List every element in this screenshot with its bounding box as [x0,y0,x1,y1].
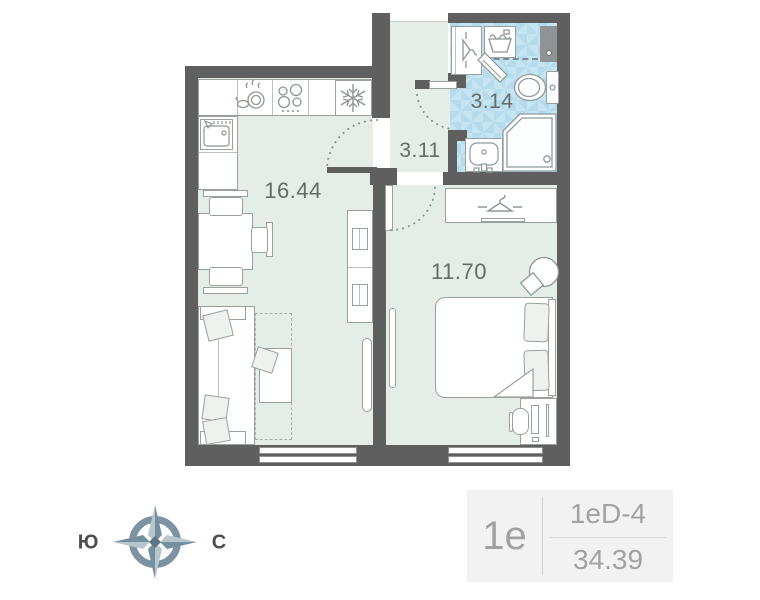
living-window [259,447,357,454]
shelf-cabinet-line [359,229,360,249]
toilet-tank [546,71,559,104]
radiator [389,308,396,388]
room-label-kitchen-living: 16.44 [264,178,322,204]
desk-chair [512,408,529,435]
legend-layout-code: 1е [467,490,542,582]
entrance-opening [390,13,448,22]
sofa-pillow [202,417,231,445]
wall-kitchen-top [185,66,372,78]
counter-divider [272,80,273,115]
shelf-cabinet-icon [352,284,368,306]
desk-chair-back [509,412,513,432]
chair-seat [251,227,268,253]
bedroom-window [448,447,543,454]
chair-seat [209,267,243,286]
chair-backrest [203,287,248,294]
room-label-bathroom: 3.14 [471,90,514,114]
room-label-hallway: 3.11 [399,139,440,163]
living-window [259,456,357,463]
dining-table [198,213,253,270]
desk-keyboard [532,437,539,442]
chair-backrest [203,190,248,197]
compass-rose [113,505,197,579]
compass-north-label: С [212,532,226,555]
shelf-divider [348,267,372,268]
fridge [335,80,372,116]
bedroom-window [448,456,543,463]
bed-pillow [523,350,549,392]
washing-machine [484,26,516,58]
bathroom-sink-cabinet [465,138,503,172]
entry-closet-door-line [455,27,456,74]
wall-entry-stub [415,80,430,89]
bathroom-door-leaf [429,81,457,89]
counter-divider [308,80,309,115]
wall-left [185,66,198,466]
compass-south-label: Ю [78,532,99,555]
radiator [362,338,372,412]
desk-shelf [546,404,549,437]
bathroom-partition-dashed [484,58,538,60]
desk-monitor [531,405,539,434]
counter-divider [199,152,237,153]
wall-bedroom-top [443,172,570,185]
wall-top-right [448,13,570,23]
legend-total-area: 34.39 [543,537,673,582]
plan-legend: 1е 1eD-4 34.39 [467,490,673,582]
room-label-bedroom: 11.70 [431,259,487,285]
wall-hall-left [372,13,390,118]
legend-plan-name: 1eD-4 [543,490,673,537]
counter-divider [237,80,238,115]
bedroom-door-leaf [385,185,393,231]
kitchen-sink-cabinet [200,119,233,150]
shelf-cabinet-line [359,285,360,305]
bed-pillow [523,303,549,343]
floor-plan-canvas: 16.44 3.11 3.14 11.70 Ю С 1е 1eD-4 34.39 [0,0,760,600]
chair-seat [209,197,243,216]
shelf-cabinet-icon [352,228,368,250]
ventilation-shaft [540,26,557,62]
compass-star [113,505,197,579]
living-door-leaf [327,167,377,173]
wardrobe-door-track [481,218,525,222]
